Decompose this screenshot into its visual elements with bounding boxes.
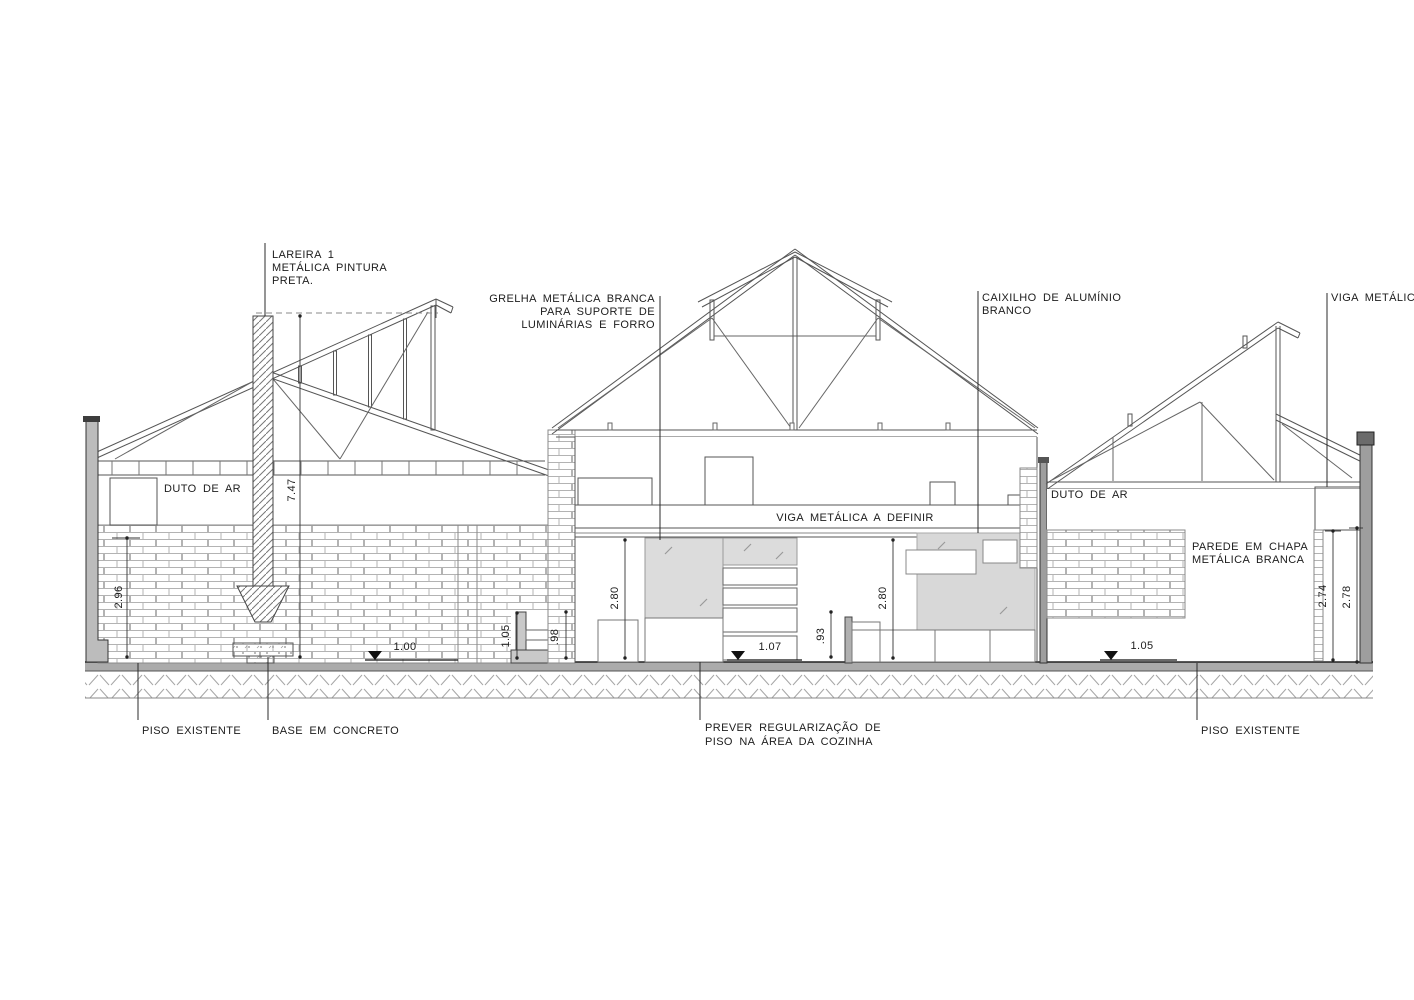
dim-right-inner: 2.74: [1317, 584, 1329, 607]
dim-junction-left: 1.05: [500, 624, 512, 647]
right-wall-cap: [1357, 432, 1374, 445]
label-caixilho: BRANCO: [982, 305, 1032, 317]
base-cabinets: [852, 630, 1035, 662]
section-drawing-canvas: LAREIRA 1 METÁLICA PINTURA PRETA. GRELHA…: [0, 0, 1414, 1000]
brick-wall-right: [1047, 530, 1185, 618]
roof-monitor: [698, 252, 892, 340]
brick-column-junction: [548, 430, 575, 663]
counter: [598, 620, 638, 662]
building-left: [83, 299, 575, 663]
low-wall: [845, 617, 852, 663]
label-lareira: METÁLICA PINTURA: [272, 261, 387, 274]
label-piso-right: PISO EXISTENTE: [1201, 725, 1300, 737]
base-cabinet: [645, 618, 723, 662]
section-drawing: LAREIRA 1 METÁLICA PINTURA PRETA. GRELHA…: [0, 0, 1414, 1000]
label-grelha: LUMINÁRIAS E FORRO: [521, 318, 655, 331]
label-prever: PISO NA ÁREA DA COZINHA: [705, 735, 873, 748]
brick-column: [1020, 468, 1037, 568]
label-viga-right: VIGA METÁLICA .: [1331, 291, 1414, 304]
label-base-concreto: BASE EM CONCRETO: [272, 725, 399, 737]
level-right: 1.05: [1130, 640, 1153, 652]
level-left: 1.00: [393, 641, 416, 653]
concrete-base: [233, 643, 293, 656]
drawer: [723, 588, 797, 605]
glass-panel: [645, 538, 723, 618]
dim-chimney-height: 7.47: [286, 478, 298, 501]
label-duto-left: DUTO DE AR: [164, 483, 241, 495]
air-duct-box-left: [110, 478, 157, 525]
label-piso-left: PISO EXISTENTE: [142, 725, 241, 737]
label-parede: PAREDE EM CHAPA: [1192, 541, 1308, 553]
label-caixilho: CAIXILHO DE ALUMÍNIO: [982, 291, 1121, 304]
left-wall-cap: [83, 416, 100, 422]
right-cut-wall: [1360, 445, 1372, 663]
dim-right-outer: 2.78: [1341, 585, 1353, 608]
label-viga-center: VIGA METÁLICA A DEFINIR: [776, 511, 934, 524]
label-grelha: GRELHA METÁLICA BRANCA: [489, 292, 655, 305]
label-prever: PREVER REGULARIZAÇÃO DE: [705, 721, 881, 734]
brick-wall-left: [98, 525, 548, 663]
dim-junction-right: .98: [549, 629, 561, 646]
label-parede: METÁLICA BRANCA: [1192, 553, 1305, 566]
hood: [906, 550, 976, 574]
ground: [85, 662, 1373, 698]
drawer: [723, 568, 797, 585]
dim-room2-height: 2.80: [877, 586, 889, 609]
label-lareira: PRETA.: [272, 275, 313, 287]
glass-panel: [723, 538, 797, 565]
dim-room1-height: 2.80: [609, 586, 621, 609]
label-lareira: LAREIRA 1: [272, 249, 334, 261]
label-grelha: PARA SUPORTE DE: [540, 306, 655, 318]
dim-low-wall: .93: [815, 628, 827, 645]
label-duto-right: DUTO DE AR: [1051, 489, 1128, 501]
drawer: [723, 608, 797, 632]
level-center: 1.07: [758, 641, 781, 653]
dim-left-wall-height: 2.96: [113, 585, 125, 608]
middle-right-cut-wall: [1040, 462, 1047, 663]
